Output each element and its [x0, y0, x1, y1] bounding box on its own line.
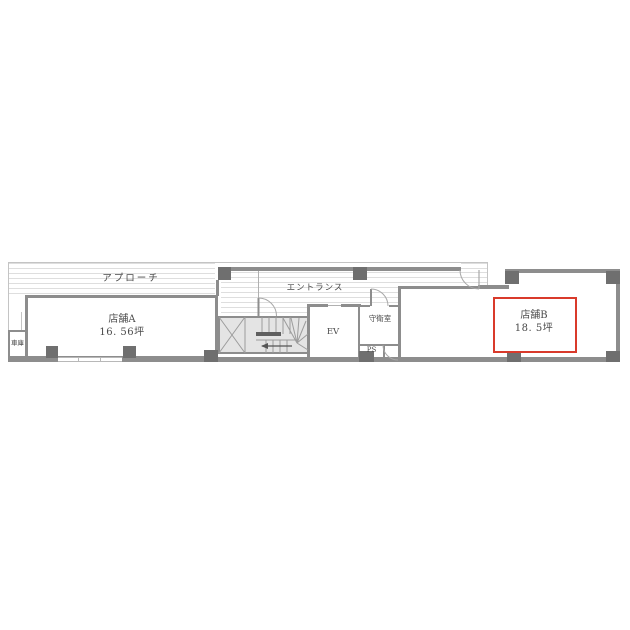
- garage-label: 車庫: [8, 339, 27, 347]
- store-b-label: 店舗B 18. 5坪: [477, 309, 591, 335]
- partition-wall-approach: [216, 280, 219, 296]
- guard-room: [358, 305, 402, 346]
- store-b-name: 店舗B: [477, 309, 591, 322]
- approach-label: アプローチ: [81, 273, 181, 285]
- pillar: [46, 346, 58, 358]
- opening-tick: [100, 358, 101, 361]
- guard-room-door-gap: [370, 304, 389, 308]
- pillar: [123, 346, 136, 358]
- store-b-room-upper: [506, 272, 618, 289]
- entrance-label: エントランス: [265, 283, 365, 294]
- outer-wall-top-main: [218, 267, 461, 271]
- wall-step-segment: [478, 285, 509, 289]
- floorplan-canvas: アプローチ エントランス 店舗A 16. 56坪 店舗B 18. 5坪 EV 守…: [0, 0, 630, 630]
- store-a-storefront-opening: [58, 357, 122, 362]
- garage-drive-line: [21, 312, 22, 330]
- store-a-area: 16. 56坪: [62, 326, 182, 339]
- pillar: [606, 271, 620, 284]
- store-a-name: 店舗A: [62, 313, 182, 326]
- pillar: [204, 350, 218, 362]
- store-b-area: 18. 5坪: [477, 322, 591, 335]
- pillar: [606, 351, 620, 362]
- outer-wall-right: [616, 272, 620, 362]
- elevator-label: EV: [317, 327, 349, 338]
- guard-room-label: 守衛室: [358, 314, 402, 323]
- opening-tick: [78, 358, 79, 361]
- outer-wall-top-right: [505, 269, 620, 273]
- entrance-paving-hatch-corner: [461, 263, 487, 272]
- pillar: [218, 267, 231, 280]
- elevator-door-mark: [328, 305, 341, 306]
- pipe-space-label: PS: [359, 346, 384, 355]
- elevator-door-gap: [328, 303, 341, 309]
- pillar: [505, 271, 519, 284]
- store-a-label: 店舗A 16. 56坪: [62, 313, 182, 339]
- stairwell-block: [218, 316, 310, 354]
- pillar: [353, 267, 367, 280]
